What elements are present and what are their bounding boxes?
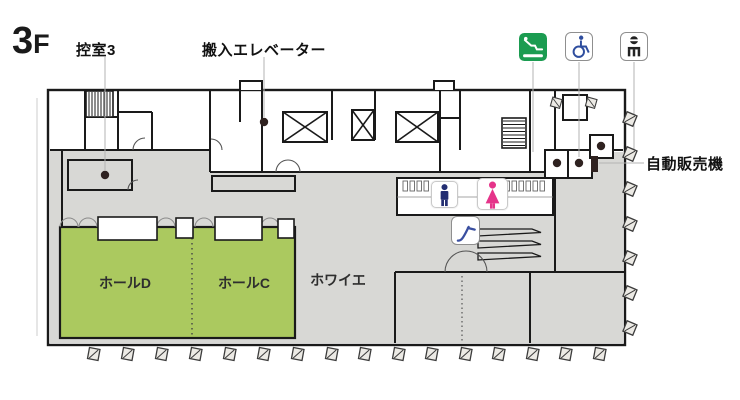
floor-number: 3 bbox=[12, 20, 33, 62]
womens-restroom-icon bbox=[477, 178, 508, 210]
vending-corner-icon bbox=[620, 32, 648, 61]
staircase-east bbox=[502, 118, 526, 148]
staircase-north bbox=[86, 91, 113, 117]
label-vending-machine: 自動販売機 bbox=[646, 153, 724, 174]
vending-machine-block bbox=[591, 156, 598, 172]
escalator-icon bbox=[519, 33, 547, 61]
label-loading-elevator: 搬入エレベーター bbox=[202, 39, 326, 60]
label-dressing-room: 控室3 bbox=[76, 39, 116, 60]
floor-map-3f: 3F 控室3 搬入エレベーター 自動販売機 ホールD ホールC ホワイエ bbox=[0, 0, 740, 400]
label-hall-c: ホールC bbox=[212, 273, 276, 293]
floor-suffix: F bbox=[33, 29, 50, 59]
top-bump bbox=[240, 81, 262, 90]
top-bump bbox=[434, 81, 454, 90]
label-hall-d: ホールD bbox=[93, 273, 157, 293]
wheelchair-icon bbox=[565, 32, 593, 61]
label-foyer: ホワイエ bbox=[306, 270, 370, 290]
elevator-shafts bbox=[283, 110, 438, 142]
escalator-down-icon bbox=[451, 216, 480, 245]
floor-title: 3F bbox=[12, 22, 50, 60]
mens-restroom-icon bbox=[431, 181, 458, 208]
